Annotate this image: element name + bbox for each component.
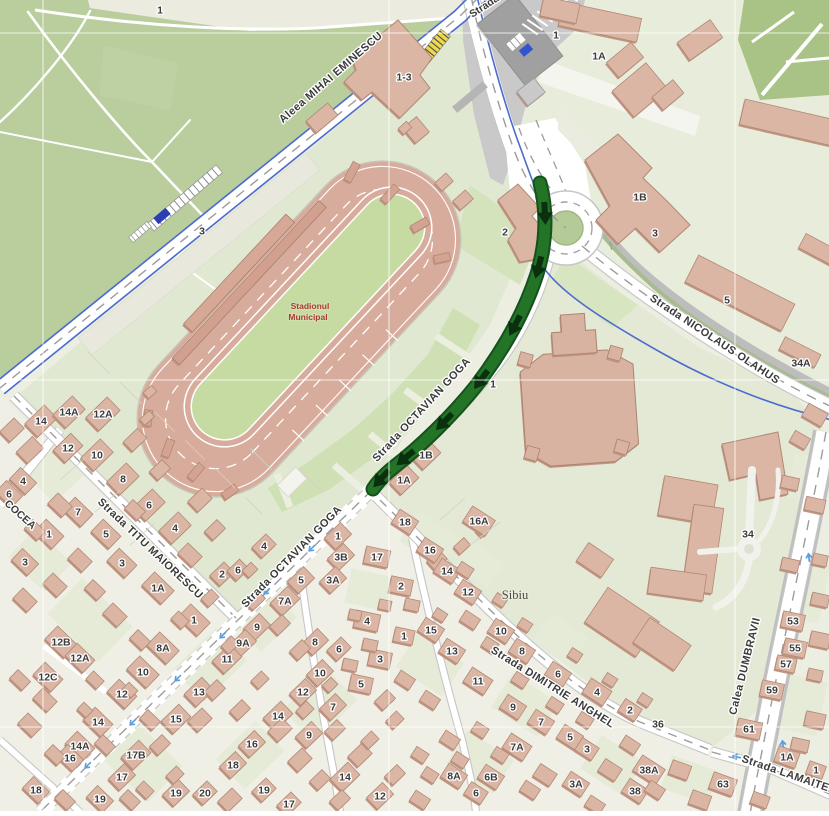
svg-text:8: 8 [120,474,126,486]
svg-text:16: 16 [424,545,436,557]
svg-text:55: 55 [789,643,801,655]
svg-text:19: 19 [258,785,270,797]
svg-text:14: 14 [441,566,453,578]
svg-text:57: 57 [780,659,792,671]
svg-text:Stadionul: Stadionul [291,301,330,311]
svg-text:8: 8 [519,646,525,658]
svg-text:12: 12 [374,791,386,803]
svg-text:53: 53 [787,616,799,628]
svg-text:13: 13 [446,646,458,658]
svg-text:11: 11 [472,676,483,688]
svg-text:9A: 9A [236,638,250,650]
svg-text:34A: 34A [791,358,811,370]
svg-text:16: 16 [64,753,76,765]
svg-text:4: 4 [364,616,370,628]
svg-text:14: 14 [92,717,104,729]
svg-text:18: 18 [227,760,239,772]
svg-text:5: 5 [298,575,304,587]
svg-text:11: 11 [221,654,232,666]
svg-text:5: 5 [724,295,730,307]
svg-text:10: 10 [495,626,507,638]
svg-text:1: 1 [553,30,559,42]
svg-text:12C: 12C [38,672,58,684]
svg-text:12A: 12A [70,653,90,665]
svg-text:12: 12 [62,443,74,455]
svg-text:3: 3 [652,228,658,240]
svg-text:3: 3 [377,654,383,666]
svg-text:10: 10 [137,667,149,679]
svg-text:1B: 1B [419,450,433,462]
svg-text:6: 6 [336,644,342,656]
svg-text:4: 4 [594,687,600,699]
svg-text:38: 38 [629,786,641,798]
svg-text:1A: 1A [592,51,606,63]
svg-text:7: 7 [75,507,81,519]
svg-text:3: 3 [119,558,125,570]
svg-text:7: 7 [330,702,336,714]
svg-text:14A: 14A [59,407,79,419]
svg-text:4: 4 [20,476,26,488]
svg-text:14: 14 [339,772,351,784]
svg-text:1: 1 [401,631,407,643]
svg-text:1: 1 [46,529,52,541]
svg-text:5: 5 [103,529,109,541]
svg-text:17: 17 [283,799,295,811]
svg-text:2: 2 [627,705,633,717]
svg-text:10: 10 [91,450,103,462]
svg-text:7A: 7A [278,596,292,608]
svg-text:19: 19 [94,794,106,806]
svg-text:9: 9 [510,702,516,714]
svg-text:6: 6 [555,669,561,681]
svg-text:6: 6 [146,500,152,512]
svg-text:61: 61 [743,724,755,736]
svg-text:20: 20 [199,788,211,800]
svg-text:6: 6 [473,788,479,800]
svg-text:12: 12 [462,587,474,599]
svg-text:12: 12 [116,689,128,701]
svg-text:14: 14 [35,416,47,428]
svg-text:3: 3 [584,744,590,756]
svg-text:1-3: 1-3 [396,72,411,84]
svg-text:1B: 1B [633,192,647,204]
svg-text:Municipal: Municipal [288,312,327,322]
svg-text:1A: 1A [780,752,794,764]
svg-text:17: 17 [371,552,383,564]
svg-text:15: 15 [425,625,437,637]
svg-text:3A: 3A [569,779,583,791]
svg-text:6: 6 [235,565,241,577]
svg-text:9: 9 [306,730,312,742]
svg-text:12B: 12B [51,637,71,649]
svg-text:63: 63 [717,779,729,791]
svg-text:19: 19 [170,788,182,800]
svg-text:2: 2 [219,569,225,581]
svg-text:10: 10 [314,668,326,680]
svg-text:12: 12 [297,687,309,699]
svg-text:34: 34 [742,529,754,541]
svg-text:4: 4 [172,523,178,535]
svg-text:4: 4 [261,541,267,553]
svg-text:12A: 12A [93,409,113,421]
svg-text:1: 1 [157,5,163,17]
svg-text:18: 18 [399,517,411,529]
svg-text:7A: 7A [510,742,524,754]
svg-text:8A: 8A [156,643,170,655]
svg-text:38A: 38A [639,765,659,777]
svg-text:17B: 17B [126,750,146,762]
svg-text:14A: 14A [70,741,90,753]
svg-text:8: 8 [312,637,318,649]
svg-text:17: 17 [116,772,128,784]
svg-text:59: 59 [766,685,778,697]
svg-text:1: 1 [813,765,819,777]
svg-text:36: 36 [652,719,664,731]
svg-text:Sibiu: Sibiu [502,588,529,602]
svg-text:3: 3 [199,226,205,238]
svg-text:16: 16 [246,739,258,751]
svg-text:2: 2 [398,581,404,593]
svg-text:7: 7 [538,717,544,729]
svg-text:2: 2 [502,227,508,239]
svg-text:8A: 8A [447,771,461,783]
svg-text:1A: 1A [397,475,411,487]
svg-text:15: 15 [170,714,182,726]
svg-text:1: 1 [335,531,341,543]
svg-text:9: 9 [254,622,260,634]
svg-text:18: 18 [30,785,42,797]
svg-text:5: 5 [567,732,573,744]
svg-text:13: 13 [193,687,205,699]
svg-text:3: 3 [22,557,28,569]
svg-text:14: 14 [272,711,284,723]
svg-text:3A: 3A [326,575,340,587]
svg-text:1: 1 [490,379,496,391]
svg-text:5: 5 [358,679,364,691]
svg-text:1A: 1A [151,583,165,595]
svg-text:3B: 3B [334,552,348,564]
svg-text:1: 1 [191,615,197,627]
svg-text:6B: 6B [484,772,498,784]
svg-text:16A: 16A [469,516,489,528]
